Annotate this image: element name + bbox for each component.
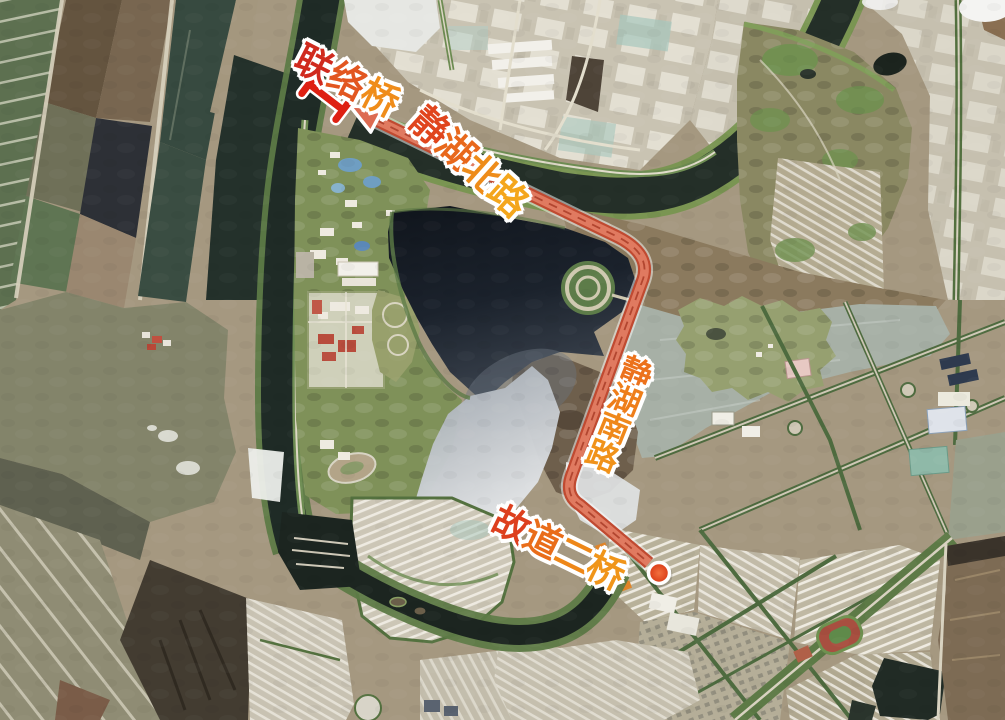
satellite-map: 联络桥 静湖北路 静湖南路 故道二桥 — [0, 0, 1005, 720]
route-end-dot-icon — [648, 563, 673, 588]
route-overlay — [0, 0, 1005, 720]
